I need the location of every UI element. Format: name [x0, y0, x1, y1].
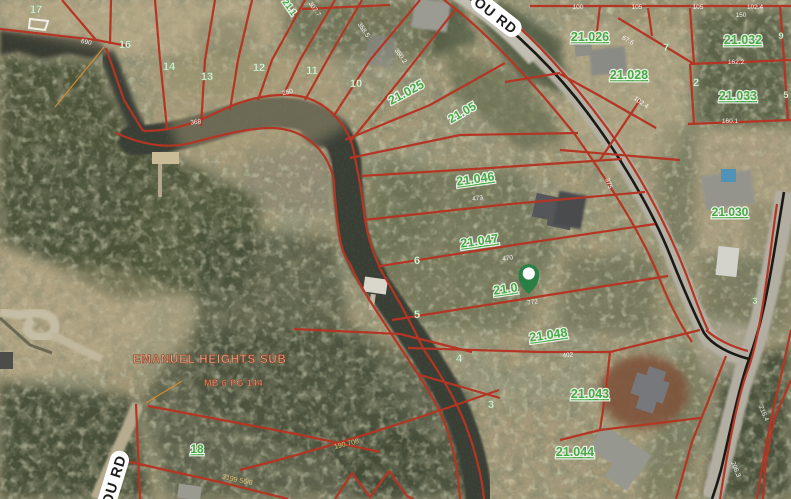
svg-text:21.032: 21.032: [724, 33, 762, 47]
svg-text:102.4: 102.4: [747, 4, 764, 11]
svg-text:16: 16: [119, 39, 131, 51]
svg-text:368: 368: [190, 118, 202, 126]
svg-text:5: 5: [414, 309, 420, 321]
svg-text:160.1: 160.1: [722, 118, 739, 125]
svg-text:3: 3: [752, 296, 757, 306]
svg-text:162.2: 162.2: [728, 59, 745, 66]
svg-text:3: 3: [488, 399, 494, 411]
svg-text:14: 14: [163, 61, 176, 73]
svg-text:21.028: 21.028: [610, 68, 648, 82]
svg-text:MB 6 PG 144: MB 6 PG 144: [204, 378, 263, 388]
svg-text:17: 17: [30, 4, 42, 16]
svg-text:21.044: 21.044: [556, 445, 594, 459]
svg-text:7: 7: [663, 42, 669, 54]
svg-text:18: 18: [190, 442, 204, 456]
svg-text:9: 9: [778, 31, 783, 41]
svg-text:10: 10: [350, 78, 362, 90]
svg-text:2: 2: [693, 77, 699, 89]
svg-text:EMANUEL HEIGHTS SUB: EMANUEL HEIGHTS SUB: [133, 354, 287, 366]
svg-text:4: 4: [456, 353, 463, 365]
svg-text:13: 13: [201, 71, 213, 83]
svg-text:21.030: 21.030: [712, 205, 749, 219]
svg-text:100: 100: [573, 4, 584, 11]
svg-text:5: 5: [783, 90, 788, 100]
svg-text:6: 6: [414, 255, 420, 267]
svg-text:105: 105: [632, 4, 643, 11]
svg-text:12: 12: [253, 62, 265, 74]
svg-text:21.043: 21.043: [571, 387, 609, 401]
svg-text:150: 150: [736, 12, 747, 19]
svg-text:21.026: 21.026: [571, 30, 609, 44]
svg-text:105: 105: [693, 4, 704, 11]
svg-text:11: 11: [306, 65, 318, 77]
svg-text:402: 402: [562, 352, 574, 360]
svg-text:21.033: 21.033: [719, 89, 757, 103]
